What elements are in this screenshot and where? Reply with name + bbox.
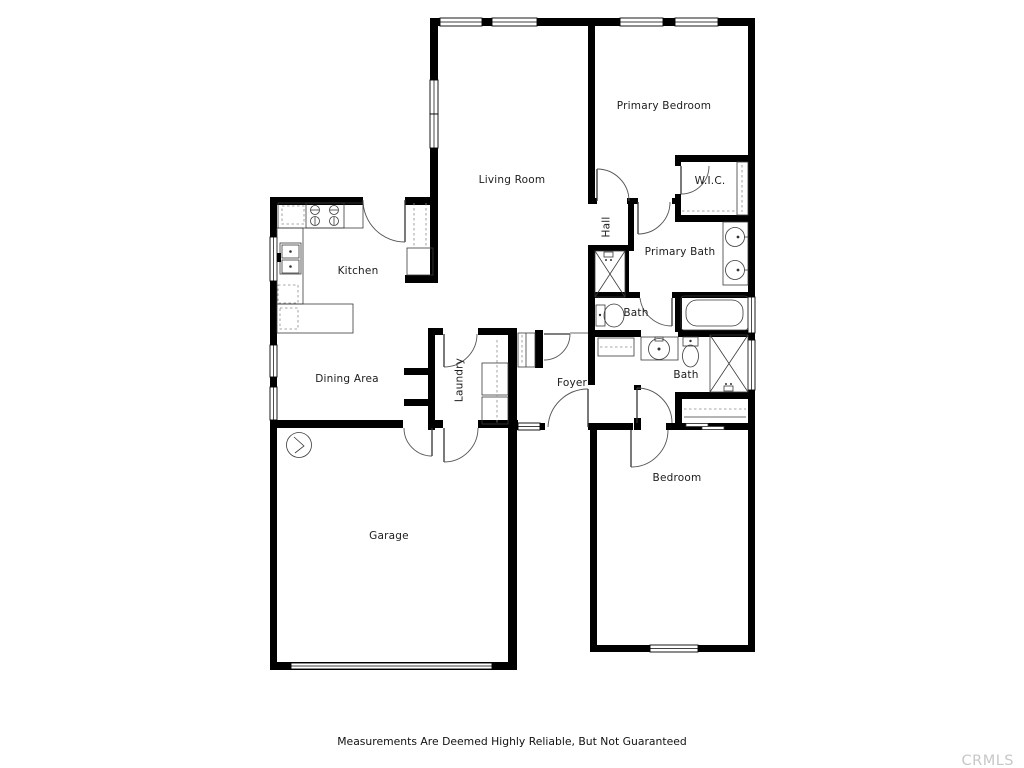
vanity-sink-icon [641,337,678,360]
window [748,340,755,390]
toilet-icon [683,337,699,367]
room-label-foyer: Foyer [557,377,588,389]
closet-rod [682,162,748,215]
window [650,645,698,652]
room-label-kitchen: Kitchen [338,265,379,277]
room-label-wic: W.I.C. [695,175,726,187]
water-heater-icon [287,433,312,458]
pantry-shelves [407,203,433,275]
garage-door [291,663,492,669]
floor-plan-svg: Living Room Primary Bedroom W.I.C. Hall … [0,0,1024,768]
door-kitchen [363,200,405,242]
linen-shelf [598,338,634,356]
door-primary-bedroom [597,169,629,201]
window [675,18,718,26]
door-laundry-garage [444,428,478,462]
door-swings [363,166,709,467]
window [518,423,540,430]
room-label-bath-lower: Bath [673,369,698,381]
room-label-dining-area: Dining Area [315,373,379,385]
toilet-icon [596,304,624,327]
crmls-watermark: CRMLS [962,753,1015,768]
kitchen-sink-icon [277,243,301,274]
bathtub-icon [681,296,748,330]
window [748,297,755,333]
washer-dryer-icon [482,340,508,424]
window [270,345,277,377]
room-labels: Living Room Primary Bedroom W.I.C. Hall … [315,100,725,542]
room-label-primary-bedroom: Primary Bedroom [617,100,711,112]
door-bath-lower [637,388,672,423]
double-vanity-icon [723,222,748,285]
door-foyer-closet [544,334,570,360]
window [270,387,277,420]
wall-segments [270,18,755,670]
room-label-living-room: Living Room [479,174,546,186]
door-primary-bath [638,202,670,234]
window [440,18,482,26]
coat-closet [518,333,588,367]
door-bedroom [631,430,668,467]
door-entry [548,389,588,427]
window [430,80,438,114]
room-label-bedroom: Bedroom [653,472,702,484]
stove-icon [306,203,344,228]
floor-plan-page: Living Room Primary Bedroom W.I.C. Hall … [0,0,1024,768]
disclaimer-text: Measurements Are Deemed Highly Reliable,… [337,735,687,748]
room-label-laundry: Laundry [454,358,466,402]
room-label-bath-upper: Bath [623,307,648,319]
room-label-hall: Hall [601,217,613,238]
shower-icon [595,251,625,297]
room-label-primary-bath: Primary Bath [645,246,716,258]
door-dining-garage [404,428,432,456]
window [492,18,537,26]
window [270,237,277,281]
window [430,114,438,148]
room-label-garage: Garage [369,530,409,542]
shower-icon [710,335,748,392]
window [620,18,663,26]
